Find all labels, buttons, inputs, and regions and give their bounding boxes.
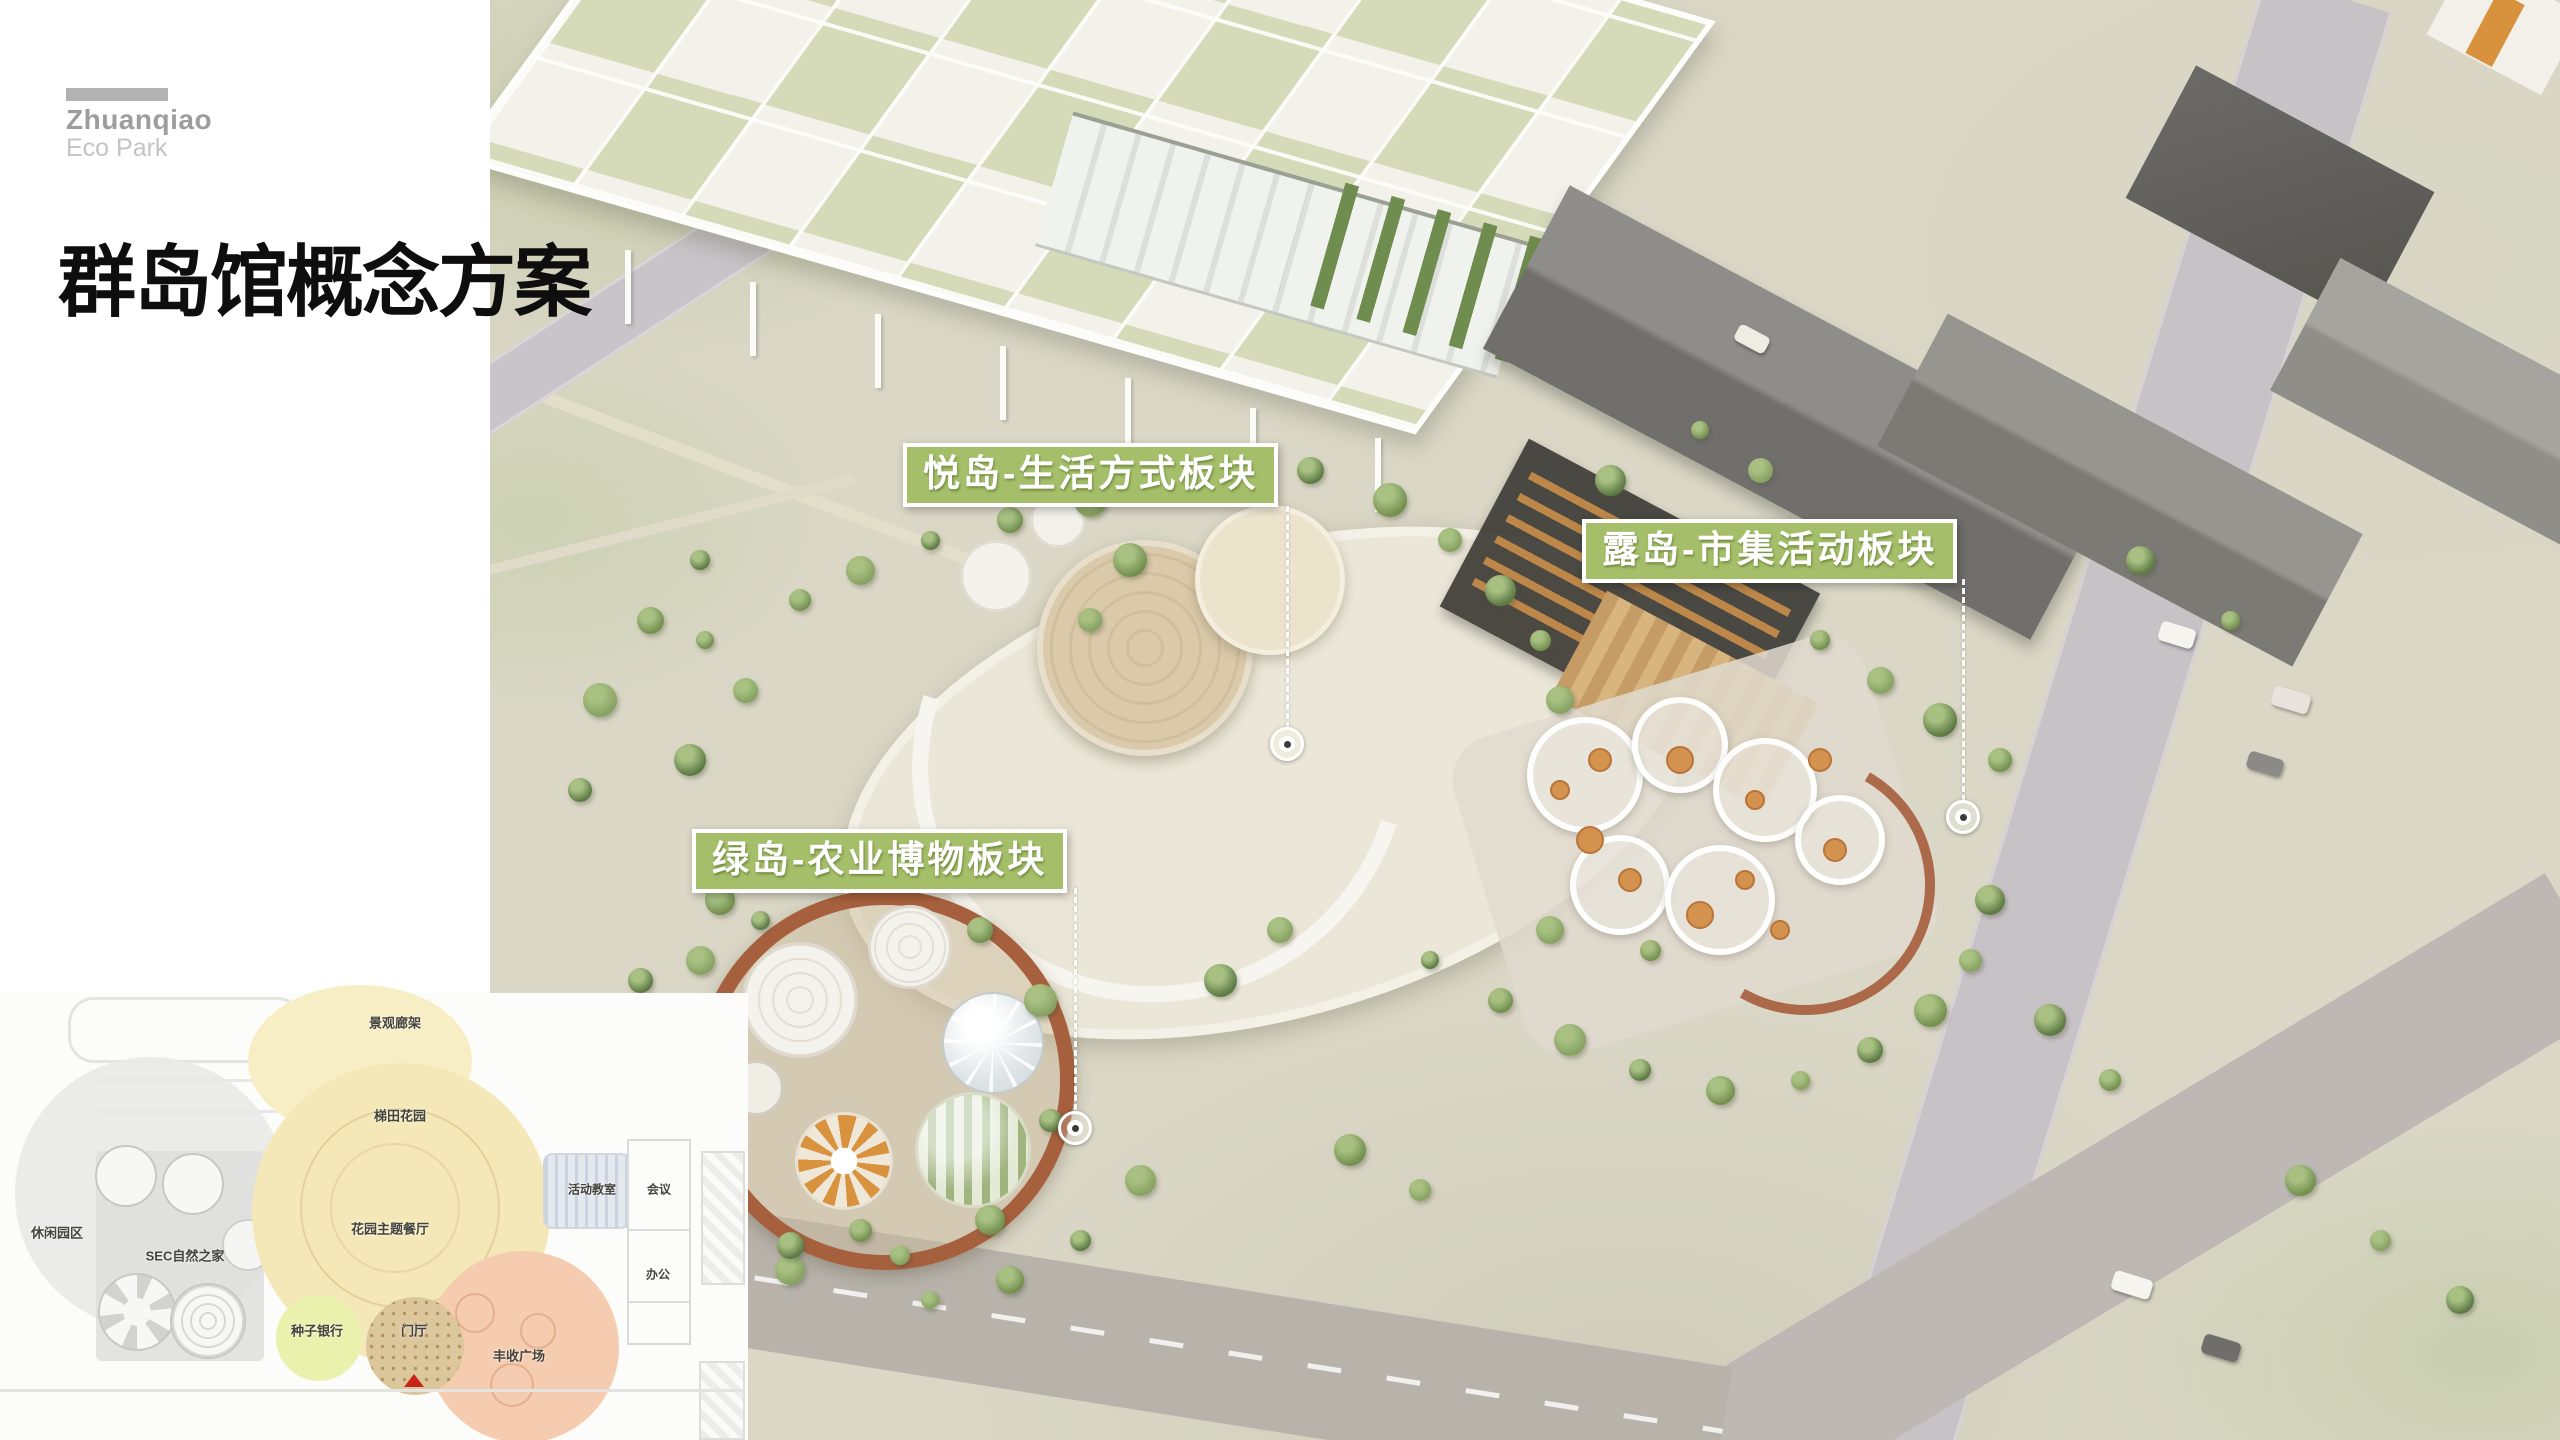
tree-icon (2034, 1004, 2066, 1036)
umbrella-icon (1618, 868, 1642, 892)
tree-icon (997, 507, 1023, 533)
tree-icon (696, 631, 714, 649)
umbrella-icon (1808, 748, 1832, 772)
zone-label-yue-island: 悦岛-生活方式板块 (903, 443, 1278, 507)
car (2200, 1333, 2242, 1363)
tree-icon (1748, 458, 1773, 483)
leader-line-yue (1286, 506, 1289, 728)
tree-icon (1640, 940, 1661, 961)
tree-icon (1409, 1179, 1431, 1201)
plan-petal-circle (98, 1273, 176, 1351)
tree-icon (751, 911, 770, 930)
field-path (490, 474, 856, 576)
tree-icon (1810, 630, 1830, 650)
umbrella-icon (1735, 870, 1755, 890)
plan-label-sec-nature-home: SEC自然之家 (146, 1246, 225, 1265)
tree-icon (1857, 1037, 1883, 1063)
tree-icon (921, 531, 940, 550)
canopy-column (750, 282, 756, 356)
tree-icon (1975, 885, 2005, 915)
tree-icon (1421, 951, 1439, 969)
plan-sketch-ring (520, 1313, 556, 1349)
entrance-arrow-icon (404, 1374, 424, 1387)
plan-label-pergola: 景观廊架 (369, 1013, 421, 1032)
tree-icon (1373, 483, 1407, 517)
zone-label-lu-island: 露岛-市集活动板块 (1582, 519, 1957, 583)
tree-icon (1113, 543, 1147, 577)
tree-icon (1595, 465, 1626, 496)
tree-icon (1629, 1059, 1651, 1081)
tree-icon (568, 778, 592, 802)
tree-icon (2221, 611, 2240, 630)
plan-truss (699, 1361, 745, 1440)
tree-icon (1867, 667, 1894, 694)
sunburst-pavilion (795, 1112, 893, 1210)
tree-icon (1530, 630, 1551, 651)
ring-canopy (1527, 717, 1643, 833)
plan-sketch-ring (490, 1363, 534, 1407)
tree-icon (1438, 528, 1462, 552)
tree-icon (975, 1205, 1005, 1235)
tree-icon (1297, 457, 1324, 484)
tree-icon (733, 678, 758, 703)
tree-icon (1488, 988, 1513, 1013)
plan-label-office: 办公 (646, 1266, 670, 1283)
site-aerial-render (490, 0, 2560, 1440)
tree-icon (775, 1255, 805, 1285)
tree-icon (1078, 608, 1102, 632)
canopy-column (1000, 346, 1006, 420)
tree-icon (1706, 1076, 1735, 1105)
white-tank (960, 540, 1032, 612)
tree-icon (1791, 1071, 1810, 1090)
slide: 景观廊架 梯田花园 花园主题餐厅 休闲园区 SEC自然之家 种子银行 门厅 活动… (0, 0, 2560, 1440)
tree-icon (1334, 1134, 1366, 1166)
tree-icon (1125, 1165, 1156, 1196)
logo-subtitle: Eco Park (66, 134, 167, 163)
umbrella-icon (1576, 826, 1604, 854)
tree-icon (996, 1266, 1024, 1294)
tree-icon (1546, 686, 1574, 714)
dome-building (868, 905, 952, 989)
tree-icon (2126, 546, 2155, 575)
tree-icon (1267, 917, 1293, 943)
tree-icon (2099, 1069, 2121, 1091)
tree-icon (686, 946, 715, 975)
umbrella-icon (1686, 901, 1714, 929)
car (2270, 685, 2312, 715)
umbrella-icon (1823, 838, 1847, 862)
tree-icon (1204, 964, 1237, 997)
tree-icon (1988, 748, 2012, 772)
logo-brand: Zhuanqiao (66, 104, 212, 136)
tree-icon (1959, 949, 1982, 972)
tree-icon (1070, 1230, 1091, 1251)
tree-icon (2446, 1286, 2474, 1314)
page-title: 群岛馆概念方案 (58, 220, 590, 332)
plan-circle (162, 1153, 224, 1215)
plan-label-leisure-area: 休闲园区 (31, 1223, 83, 1242)
tree-icon (789, 589, 811, 611)
plan-label-meeting: 会议 (647, 1181, 671, 1198)
tree-icon (1554, 1024, 1586, 1056)
tree-icon (1691, 421, 1709, 439)
plan-room-divider (629, 1229, 689, 1231)
umbrella-icon (1588, 748, 1612, 772)
tree-icon (967, 917, 993, 943)
plan-label-activity-classroom: 活动教室 (568, 1181, 616, 1198)
tree-icon (1024, 984, 1057, 1017)
location-marker-icon (1270, 727, 1304, 761)
plan-sketch-ring (455, 1293, 495, 1333)
plan-room-divider (629, 1301, 689, 1303)
location-marker-icon (1058, 1111, 1092, 1145)
floor-plan-inset: 景观廊架 梯田花园 花园主题餐厅 休闲园区 SEC自然之家 种子银行 门厅 活动… (0, 993, 748, 1440)
striped-dome (915, 1092, 1031, 1208)
car (2245, 750, 2285, 778)
tree-icon (2285, 1165, 2316, 1196)
tree-icon (921, 1291, 939, 1309)
tree-icon (674, 744, 706, 776)
tree-icon (846, 556, 875, 585)
plan-circle (95, 1145, 157, 1207)
leader-line-lu (1962, 579, 1965, 801)
canopy-column (625, 250, 631, 324)
plan-label-entrance-hall: 门厅 (401, 1321, 427, 1340)
tree-icon (1536, 916, 1564, 944)
ring-canopy (1665, 845, 1775, 955)
umbrella-icon (1770, 920, 1790, 940)
tree-icon (1914, 994, 1947, 1027)
tree-icon (690, 550, 710, 570)
tree-icon (849, 1219, 872, 1242)
plan-road-line (0, 1389, 745, 1392)
tree-icon (2370, 1230, 2391, 1251)
plan-sketch-ring (330, 1143, 460, 1273)
canopy-column (875, 314, 881, 388)
plan-label-garden-restaurant: 花园主题餐厅 (351, 1219, 429, 1238)
umbrella-icon (1666, 746, 1694, 774)
canopy-column (1125, 378, 1131, 452)
tree-icon (1485, 575, 1516, 606)
location-marker-icon (1946, 800, 1980, 834)
plan-office-column (627, 1139, 691, 1345)
logo-bar (66, 88, 168, 101)
tree-icon (777, 1232, 804, 1259)
round-roof-disc (1195, 505, 1345, 655)
zone-label-green-island: 绿岛-农业博物板块 (692, 829, 1067, 893)
dome-building (742, 942, 858, 1058)
tree-icon (1923, 703, 1957, 737)
umbrella-icon (1745, 790, 1765, 810)
tree-icon (890, 1245, 910, 1265)
plan-label-seed-bank: 种子银行 (291, 1321, 343, 1340)
plan-label-terrace-garden: 梯田花园 (374, 1106, 426, 1125)
plan-ring-circle (170, 1283, 246, 1359)
plan-label-harvest-plaza: 丰收广场 (493, 1346, 545, 1365)
tree-icon (583, 683, 617, 717)
plan-truss (701, 1151, 745, 1285)
umbrella-icon (1550, 780, 1570, 800)
tree-icon (628, 968, 653, 993)
leader-line-green (1074, 888, 1077, 1110)
tree-icon (637, 607, 664, 634)
